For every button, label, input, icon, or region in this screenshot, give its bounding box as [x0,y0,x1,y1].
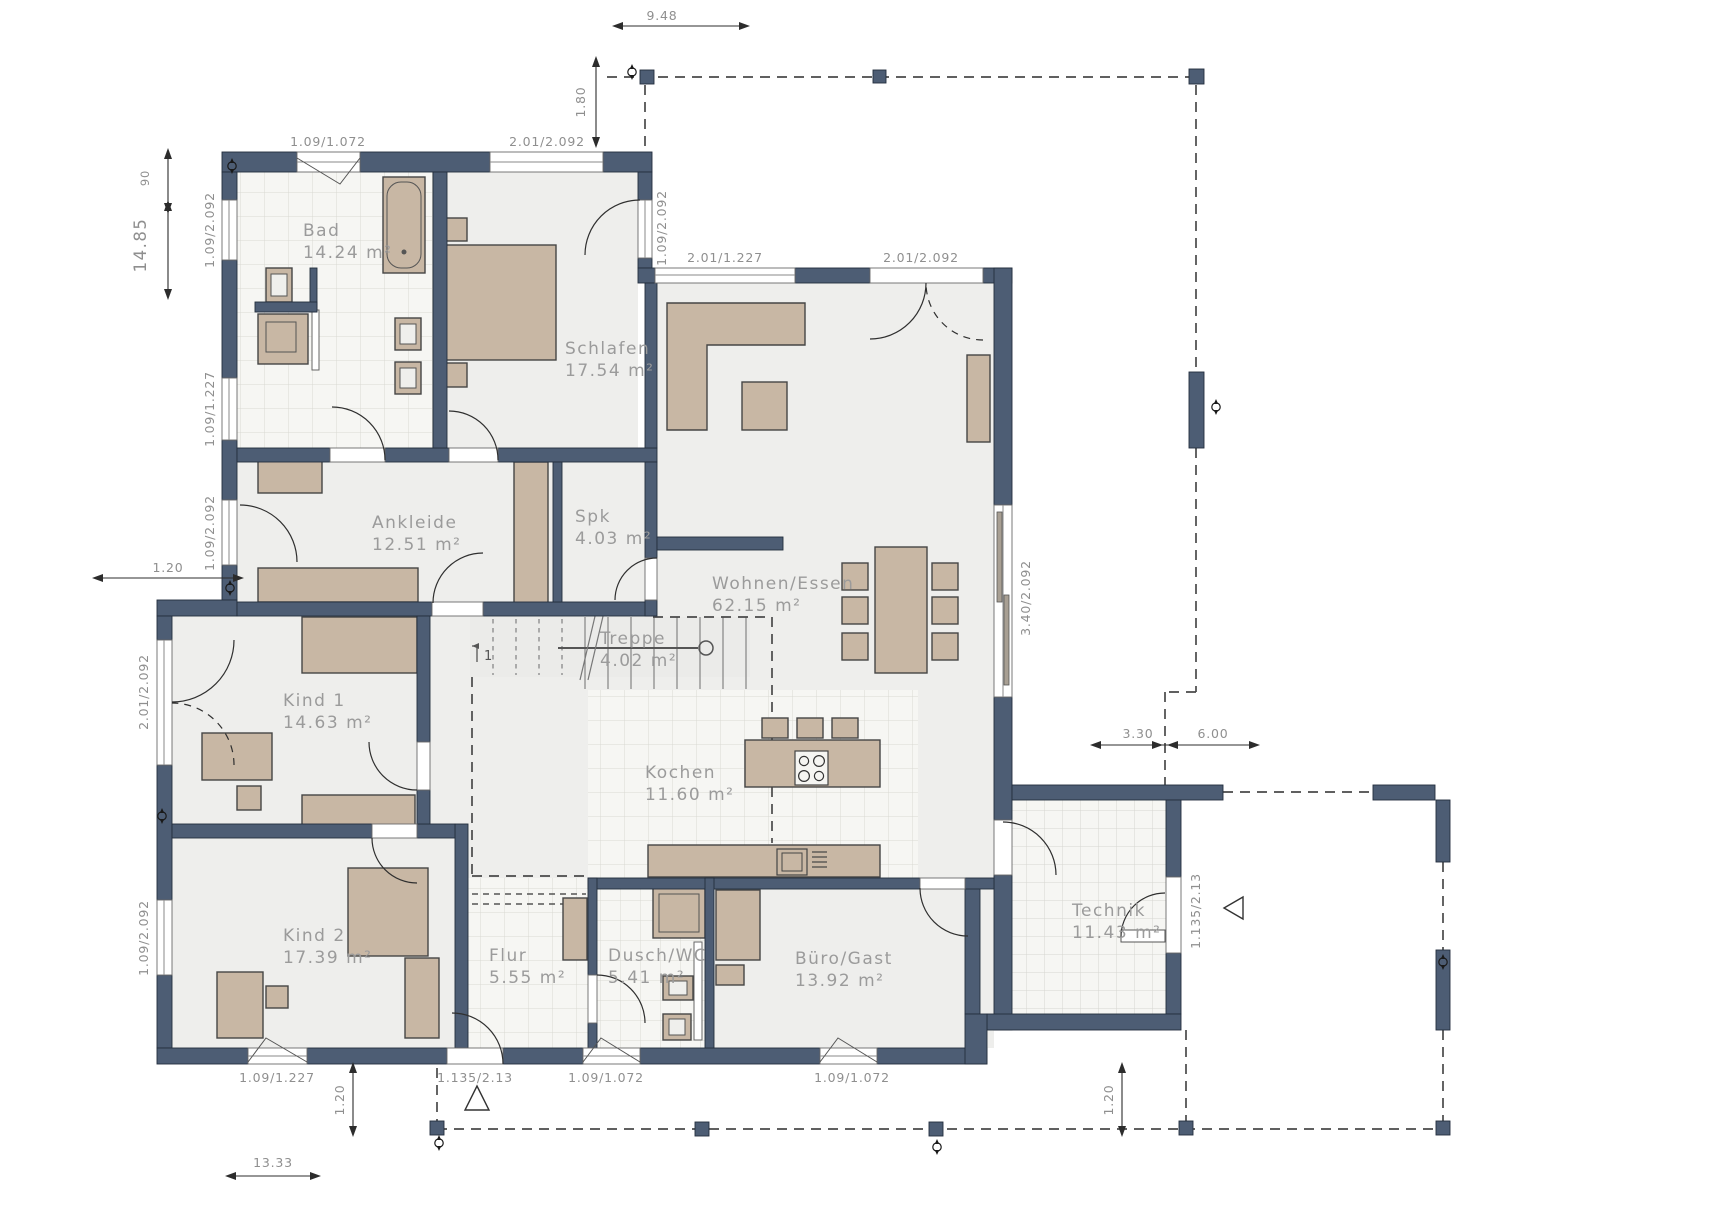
dim-label: 1.09/1.227 [239,1070,315,1085]
kitchen-counter [648,845,880,877]
dim-label: 1.09/1.072 [290,134,366,149]
double-bed [440,245,556,360]
dim-label: 1.09/2.092 [654,190,669,266]
guest-bed [716,890,760,960]
technik-entry-opening [1166,877,1181,953]
room-area: 62.15 m² [712,596,801,616]
room-area: 14.63 m² [283,713,372,733]
dim-label: 1.20 [1101,1084,1116,1115]
dresser [302,795,415,825]
side-table [716,965,744,985]
wardrobe [514,462,548,605]
room-name: Dusch/WC [608,946,707,966]
room-name: Flur [489,946,527,966]
shower-glass [312,310,319,370]
room-area: 4.03 m² [575,529,652,549]
carport-post [1436,1121,1450,1135]
room-area: 11.60 m² [645,785,734,805]
room-area: 5.55 m² [489,968,566,988]
floor-plan-page: 9.48 1.80 1.09/1.072 2.01/2.092 1.09/2.0… [0,0,1720,1215]
chair [932,563,958,590]
dim-label: 6.00 [1197,726,1228,741]
chair [932,597,958,624]
room-name: Kochen [645,763,716,783]
room-name: Technik [1071,901,1146,921]
room-area: 14.24 m² [303,243,392,263]
dim-label: 3.40/2.092 [1018,560,1033,636]
room-name: Treppe [599,629,666,649]
dim-label: 1.09/2.092 [136,900,151,976]
tv-board [967,355,990,442]
chair [237,786,261,810]
dim-label: 3.30 [1122,726,1153,741]
cabinet [563,898,587,960]
bed [348,868,428,956]
terrace-post [1179,1121,1193,1135]
terrace-post [873,70,886,83]
chair [842,597,868,624]
dim-label: 1.09/2.092 [202,192,217,268]
room-name: Kind 2 [283,926,346,946]
wardrobe [258,568,418,602]
room-area: 12.51 m² [372,535,461,555]
room-area: 13.92 m² [795,971,884,991]
entrance-door-opening [447,1048,503,1064]
chair [932,633,958,660]
chair [842,633,868,660]
dim-label: 1.20 [332,1084,347,1115]
dim-label: 9.48 [646,8,677,23]
terrace-post [1189,69,1204,84]
shower [653,888,705,938]
room-name: Schlafen [565,339,650,359]
wardrobe [258,458,322,493]
wardrobe [405,958,439,1038]
ottoman [742,382,787,430]
dim-label: 2.01/2.092 [509,134,585,149]
dim-label: 90 [138,170,152,186]
dining-table [875,547,927,673]
dim-label: 1.09/2.092 [202,495,217,571]
terrace-post [929,1122,943,1136]
stool [797,718,823,738]
room-name: Büro/Gast [795,949,893,969]
stool [762,718,788,738]
carport-wall [1373,785,1435,800]
room-area: 11.43 m² [1072,923,1161,943]
dim-label: 2.01/1.227 [687,250,763,265]
room-area: 17.39 m² [283,948,372,968]
stool [832,718,858,738]
dim-label: 13.33 [253,1155,293,1170]
dim-label: 2.01/2.092 [883,250,959,265]
room-name: Wohnen/Essen [712,574,854,594]
bed [302,617,417,673]
dim-label: 2.01/2.092 [136,654,151,730]
desk [217,972,263,1038]
terrace-post [695,1122,709,1136]
room-name: Kind 1 [283,691,346,711]
desk [202,733,272,780]
carport-wall [1436,800,1450,862]
dim-label: 1.09/1.072 [814,1070,890,1085]
dim-label: 1.09/1.072 [568,1070,644,1085]
carport-pier [1436,950,1450,1030]
dim-label: 1.20 [152,560,183,575]
dim-label: 1.09/1.227 [202,371,217,447]
room-area: 5.41 m² [608,968,685,988]
terrace-post [430,1121,444,1135]
dim-label: 1.135/2.13 [437,1070,513,1085]
chair [266,986,288,1008]
room-name: Bad [303,221,340,241]
technik-entrance-triangle [1224,897,1243,919]
room-area: 17.54 m² [565,361,654,381]
entrance-triangle [465,1086,489,1110]
dim-label: 1.135/2.13 [1188,873,1203,949]
room-area: 4.02 m² [600,651,677,671]
dim-label: 14.85 [131,218,150,273]
room-name: Spk [575,507,611,527]
terrace-post [640,70,654,84]
room-name: Ankleide [372,513,457,533]
stair-step-number: 1 [484,649,492,664]
floor-plan-drawing: 9.48 1.80 1.09/1.072 2.01/2.092 1.09/2.0… [0,0,1720,1215]
terrace-pier [1189,372,1204,448]
dim-label: 1.80 [573,86,588,117]
